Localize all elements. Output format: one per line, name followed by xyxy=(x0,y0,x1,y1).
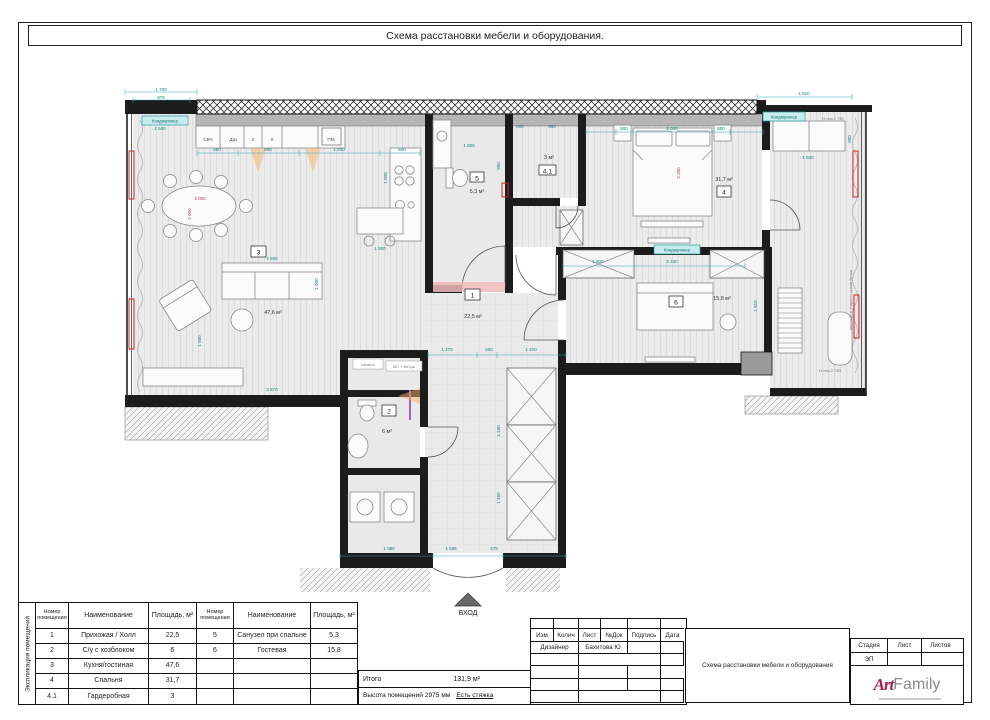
svg-text:1 500: 1 500 xyxy=(197,335,202,347)
row-area: 5,3 xyxy=(311,629,357,644)
svg-text:970: 970 xyxy=(157,95,165,100)
svg-text:600: 600 xyxy=(485,347,493,352)
row-name: Прихожая / Холл xyxy=(69,629,149,644)
svg-text:1 160: 1 160 xyxy=(496,425,501,437)
tb-col-kolich: Колич xyxy=(554,629,579,642)
row-num: 3 xyxy=(36,659,69,674)
row-name: Гостевая xyxy=(234,644,311,659)
drawing-sheet: Схема расстановки мебели и оборудования. xyxy=(0,0,990,720)
row-area: 31,7 xyxy=(149,674,197,689)
fridge-label-2: Х xyxy=(270,137,273,142)
stage-label: Стадия xyxy=(851,639,888,652)
ceiling-soffit xyxy=(196,114,763,126)
room-41-area: 3 м² xyxy=(544,155,554,161)
svg-text:1 000: 1 000 xyxy=(314,278,319,290)
room-6-area: 15,8 м² xyxy=(713,296,731,302)
logo-family-text: Family xyxy=(893,676,940,694)
sheet-label: Лист xyxy=(888,639,922,652)
room-41-number: 4.1 xyxy=(543,168,553,175)
row-name: Спальня xyxy=(69,674,149,689)
row-num: 2 xyxy=(36,644,69,659)
fridge-label-1: Х xyxy=(251,137,254,142)
room-5-area: 5,3 м² xyxy=(470,189,485,195)
sheets-label: Листов xyxy=(922,639,959,652)
svg-text:600: 600 xyxy=(516,124,524,129)
svg-text:600: 600 xyxy=(398,147,406,152)
laundry-note: место для стирки и сушки белья xyxy=(848,270,853,330)
svg-text:2 000: 2 000 xyxy=(194,196,206,201)
row-num: 1 xyxy=(36,629,69,644)
room-3-area: 47,6 м² xyxy=(264,310,282,316)
svg-text:2 100: 2 100 xyxy=(666,259,678,264)
artfamily-logo: Art Family xyxy=(851,666,963,704)
svg-text:1 200: 1 200 xyxy=(333,147,345,152)
svg-text:800: 800 xyxy=(847,135,852,143)
col-header-num-left: Номер помещения xyxy=(36,603,69,629)
room-1-area: 22,5 м² xyxy=(464,314,482,320)
room-2-number: 2 xyxy=(387,409,391,416)
room-1-number: 1 xyxy=(471,293,475,300)
tb-col-ndok: №Док xyxy=(601,629,628,642)
svg-text:1 600: 1 600 xyxy=(463,143,475,148)
row-num: 6 xyxy=(197,644,234,659)
totals-block: Итого 131,9 м² Высота помещений 2975 мм … xyxy=(358,670,532,705)
logo-tagline xyxy=(879,698,941,700)
screed-note: Есть стяжка xyxy=(456,692,493,699)
svg-text:2 000: 2 000 xyxy=(666,126,678,131)
svg-text:500: 500 xyxy=(620,126,628,131)
svg-text:900: 900 xyxy=(264,147,272,152)
svg-text:475: 475 xyxy=(490,546,498,551)
ac-label-1: Кондиционер xyxy=(152,119,179,124)
svg-text:1 400: 1 400 xyxy=(525,347,537,352)
row-area: 6 xyxy=(149,644,197,659)
row-name: Кухня/гостиная xyxy=(69,659,149,674)
explication-table: Номер помещения Наименование Площадь, м²… xyxy=(35,602,358,705)
room-3-number: 3 xyxy=(257,250,261,257)
entrance-marker: ВХОД xyxy=(455,593,481,617)
tb-col-data: Дата xyxy=(661,629,684,642)
col-header-name-left: Наименование xyxy=(69,603,149,629)
room-4-area: 31,7 м² xyxy=(715,177,733,183)
room-2-area: 6 м² xyxy=(382,429,392,435)
room-4-number: 4 xyxy=(722,190,726,197)
ceiling-height-note: Высота помещений 2975 мм xyxy=(363,692,450,699)
room-6-number: 6 xyxy=(674,300,678,307)
svg-text:1 810: 1 810 xyxy=(753,300,758,312)
row-num: 4.1 xyxy=(36,689,69,704)
svg-text:1 500: 1 500 xyxy=(383,172,388,184)
row-num: 4 xyxy=(36,674,69,689)
ac-label-3: Кондиционер xyxy=(771,115,798,120)
tb-col-podpis: Подпись xyxy=(628,629,661,642)
svg-text:2 870: 2 870 xyxy=(266,387,278,392)
col-header-name-right: Наименование xyxy=(234,603,311,629)
total-label: Итого xyxy=(363,676,381,683)
row-name: С/у с хозблоком xyxy=(69,644,149,659)
svg-text:2 600: 2 600 xyxy=(266,256,278,261)
svg-text:500: 500 xyxy=(717,126,725,131)
tb-col-izm: Изм xyxy=(531,629,554,642)
logo-art-text: Art xyxy=(874,675,894,695)
titleblock-revision-grid: Изм Колич Лист №Док Подпись Дата Дизайне… xyxy=(530,618,687,705)
svg-text:1 600: 1 600 xyxy=(802,155,814,160)
svg-text:1 800: 1 800 xyxy=(592,259,604,264)
entrance-label: ВХОД xyxy=(459,610,478,617)
total-value: 131,9 м² xyxy=(453,676,480,683)
col-header-area-left: Площадь, м² xyxy=(149,603,197,629)
designer-label: Дизайнер xyxy=(531,642,579,654)
svg-text:1 450: 1 450 xyxy=(496,492,501,504)
svg-text:1 470: 1 470 xyxy=(441,347,453,352)
svg-text:2 300: 2 300 xyxy=(676,167,681,179)
row-num: 5 xyxy=(197,629,234,644)
floors xyxy=(133,112,866,553)
svg-text:980: 980 xyxy=(548,124,556,129)
dsh-label: ДШ xyxy=(229,137,236,142)
col-header-area-right: Площадь, м² xyxy=(311,603,357,629)
height-note-top: H низ 2 730 xyxy=(822,116,844,121)
ac-label-2: Кондиционер xyxy=(664,248,691,253)
col-header-num-right: Номер помещения xyxy=(197,603,234,629)
row-area: 15,8 xyxy=(311,644,357,659)
svg-text:1 500: 1 500 xyxy=(374,246,386,251)
svg-text:1 700: 1 700 xyxy=(155,87,167,92)
rod-label: Штанга xyxy=(361,362,375,367)
svg-text:1 085: 1 085 xyxy=(383,546,395,551)
row-area: 3 xyxy=(149,689,197,704)
washer-label: МС + МСуш xyxy=(393,364,415,369)
row-area: 22,5 xyxy=(149,629,197,644)
svg-text:1 000: 1 000 xyxy=(187,208,192,220)
row-name: Гардеробная xyxy=(69,689,149,704)
svg-text:600: 600 xyxy=(213,147,221,152)
row-name: Санузел при спальне xyxy=(234,629,311,644)
titleblock-doc-title: Схема расстановки мебели и оборудования xyxy=(685,628,850,703)
svg-text:1 820: 1 820 xyxy=(798,91,810,96)
microwave-label: СВЧ xyxy=(203,137,212,142)
svg-text:1 595: 1 595 xyxy=(445,546,457,551)
svg-text:900: 900 xyxy=(496,162,501,170)
tb-col-list: Лист xyxy=(579,629,601,642)
height-note-bottom: H низ 2 730 xyxy=(819,368,841,373)
titleblock-stage-grid: Стадия Лист Листов ЭП Art Family xyxy=(850,638,964,705)
svg-text:1 500: 1 500 xyxy=(154,126,166,131)
stage-value: ЭП xyxy=(851,653,888,665)
dishwasher-label: ПМ xyxy=(327,137,334,142)
row-area: 47,6 xyxy=(149,659,197,674)
room-5-number: 5 xyxy=(475,175,479,182)
designer-name: Бахитова Ю xyxy=(579,642,628,654)
